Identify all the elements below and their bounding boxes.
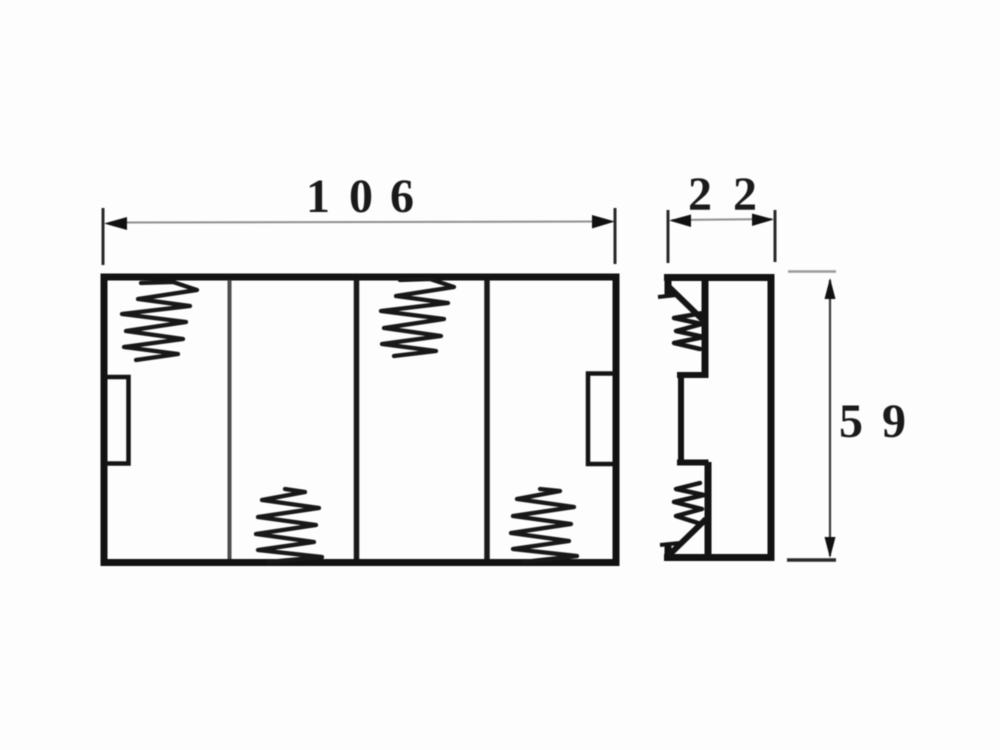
svg-text:5: 5: [839, 395, 863, 448]
svg-text:2: 2: [688, 168, 712, 221]
svg-text:1: 1: [306, 170, 330, 223]
svg-text:0: 0: [349, 170, 373, 223]
svg-text:2: 2: [733, 168, 757, 221]
svg-text:6: 6: [390, 170, 414, 223]
svg-text:9: 9: [882, 395, 906, 448]
